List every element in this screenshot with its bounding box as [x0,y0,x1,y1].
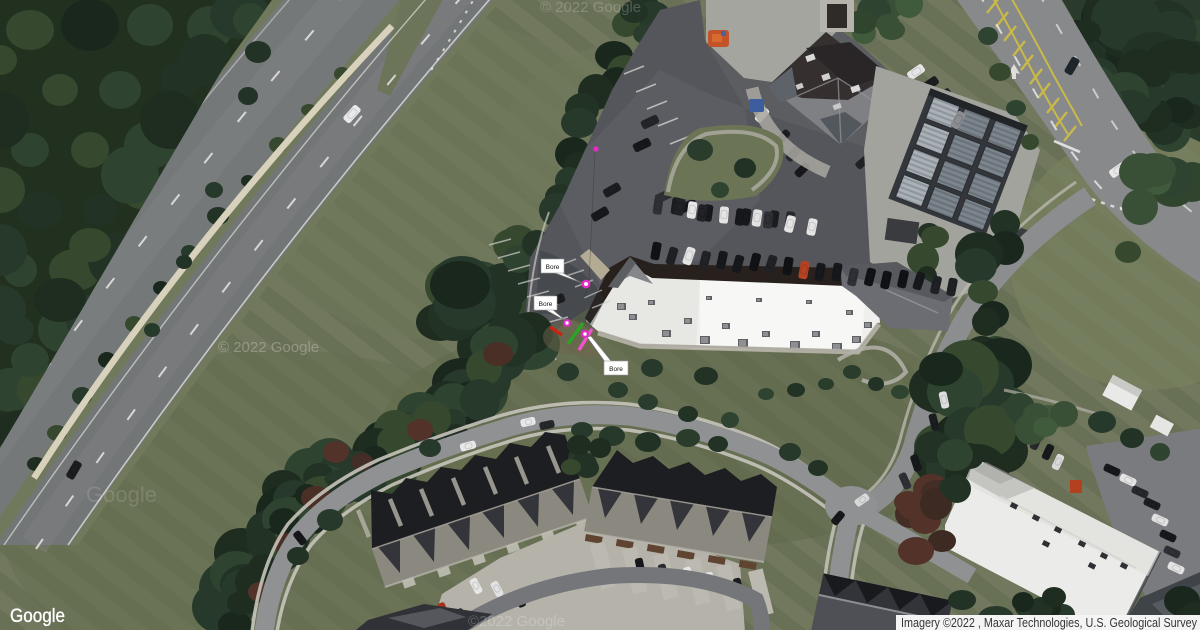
svg-text:Imagery ©2022 , Maxar Technolo: Imagery ©2022 , Maxar Technologies, U.S.… [901,615,1197,630]
svg-text:Bore: Bore [609,366,623,373]
svg-text:© 2022 Google: © 2022 Google [218,339,319,356]
svg-text:©2022 Google: ©2022 Google [468,613,565,630]
svg-text:Bore: Bore [539,301,553,308]
svg-text:© 2022 Google: © 2022 Google [540,0,641,16]
svg-text:Bore: Bore [546,264,560,271]
svg-text:Google: Google [10,606,65,627]
svg-text:Google: Google [86,482,157,507]
